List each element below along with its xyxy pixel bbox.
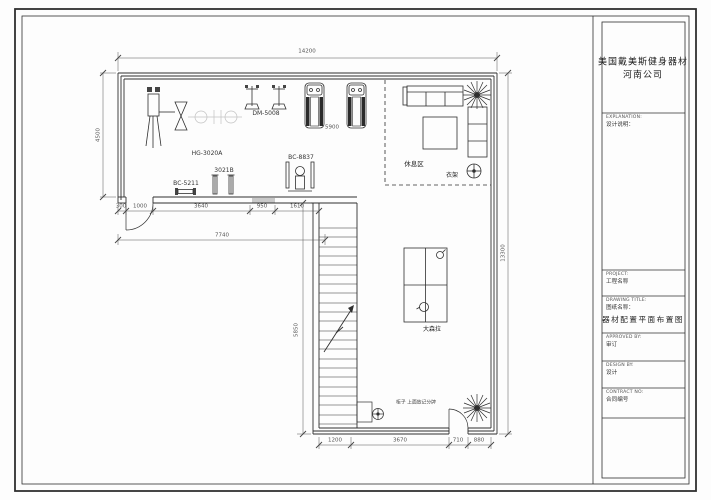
bc8837-machine <box>286 162 314 191</box>
company-name-line1: 美国戴美斯健身器材 <box>598 58 688 67</box>
scoreboard-cabinet <box>357 402 384 422</box>
coffee-table <box>423 117 457 149</box>
dim-interior-3640: 3640 <box>194 204 208 210</box>
dim-interior-300: 300 <box>116 204 127 210</box>
side-cabinet <box>468 107 487 157</box>
treadmill <box>347 83 366 128</box>
approved-by-label: APPROVED BY: <box>606 336 642 341</box>
drawing-sheet: 14200 4500 13300 5850 5900 300 1000 3640… <box>0 0 711 500</box>
dim-bottom-1200: 1200 <box>328 438 342 444</box>
dm-stand <box>245 85 259 109</box>
label-3021b: 3021B <box>214 168 233 174</box>
dim-bottom-880: 880 <box>474 438 485 444</box>
treadmill <box>305 83 324 128</box>
contract-no-label: CONTRACT NO: <box>606 391 644 396</box>
label-puller-machine: 大森拉 <box>423 327 441 333</box>
dim-interior-total: 7740 <box>215 233 229 239</box>
label-hg-3020a: HG-3020A <box>192 151 223 157</box>
sheet-frame <box>15 9 696 491</box>
floorplan-drawing <box>0 0 711 500</box>
dim-left-height: 4500 <box>96 128 102 142</box>
dim-interior-1610: 1610 <box>290 204 304 210</box>
dim-stair-height: 5850 <box>294 323 300 337</box>
drawing-title-cn: 图纸名称： <box>606 306 634 312</box>
drawing-title-main: 器材配置平面布置图 <box>602 316 684 324</box>
dim-bottom-710: 710 <box>453 438 464 444</box>
stairs <box>319 228 357 424</box>
label-scoreboard-note: 柜子 上面放记分牌 <box>396 402 436 407</box>
walls <box>118 73 497 434</box>
door-bottom-right <box>449 409 468 428</box>
dimension-ticks <box>100 55 511 448</box>
label-bc-8837: BC-8837 <box>288 155 314 161</box>
label-bc-5211: BC-5211 <box>173 181 199 187</box>
plant-icon <box>463 394 491 422</box>
project-cn: 工程名称 <box>606 280 628 286</box>
bc5211-bench <box>175 188 196 195</box>
dim-treadmill-area: 5900 <box>325 125 339 131</box>
design-by-cn: 设计 <box>606 371 617 377</box>
dim-bottom-3670: 3670 <box>393 438 407 444</box>
dim-interior-950: 950 <box>257 204 268 210</box>
sofa <box>403 86 463 106</box>
dm-stand <box>272 85 286 109</box>
title-block-box <box>602 22 685 478</box>
dim-interior-1000: 1000 <box>133 204 147 210</box>
coat-rack-icon <box>467 164 481 178</box>
ping-pong-table <box>404 248 447 322</box>
dumbbell-rack <box>212 175 219 194</box>
hg-machine <box>146 87 242 148</box>
design-by-label: DESIGN BY: <box>606 364 634 369</box>
explanation-label: EXPLANATION: <box>606 116 642 121</box>
contract-no-cn: 合同编号 <box>606 398 628 404</box>
project-label: PROJECT: <box>606 273 629 278</box>
company-name-line2: 河南公司 <box>623 71 663 80</box>
dim-right-height: 13300 <box>501 244 507 262</box>
explanation-cn: 设计说明： <box>606 123 634 129</box>
label-coat-rack: 衣架 <box>446 173 458 179</box>
plant-icon <box>463 81 491 109</box>
label-rest-area: 休息区 <box>404 161 424 168</box>
drawing-title-label: DRAWING TITLE: <box>606 299 647 304</box>
approved-by-cn: 审订 <box>606 343 617 349</box>
dim-top-width: 14200 <box>298 49 316 55</box>
label-dm-5008: DM-5008 <box>252 111 279 117</box>
dumbbell-rack <box>228 175 235 194</box>
